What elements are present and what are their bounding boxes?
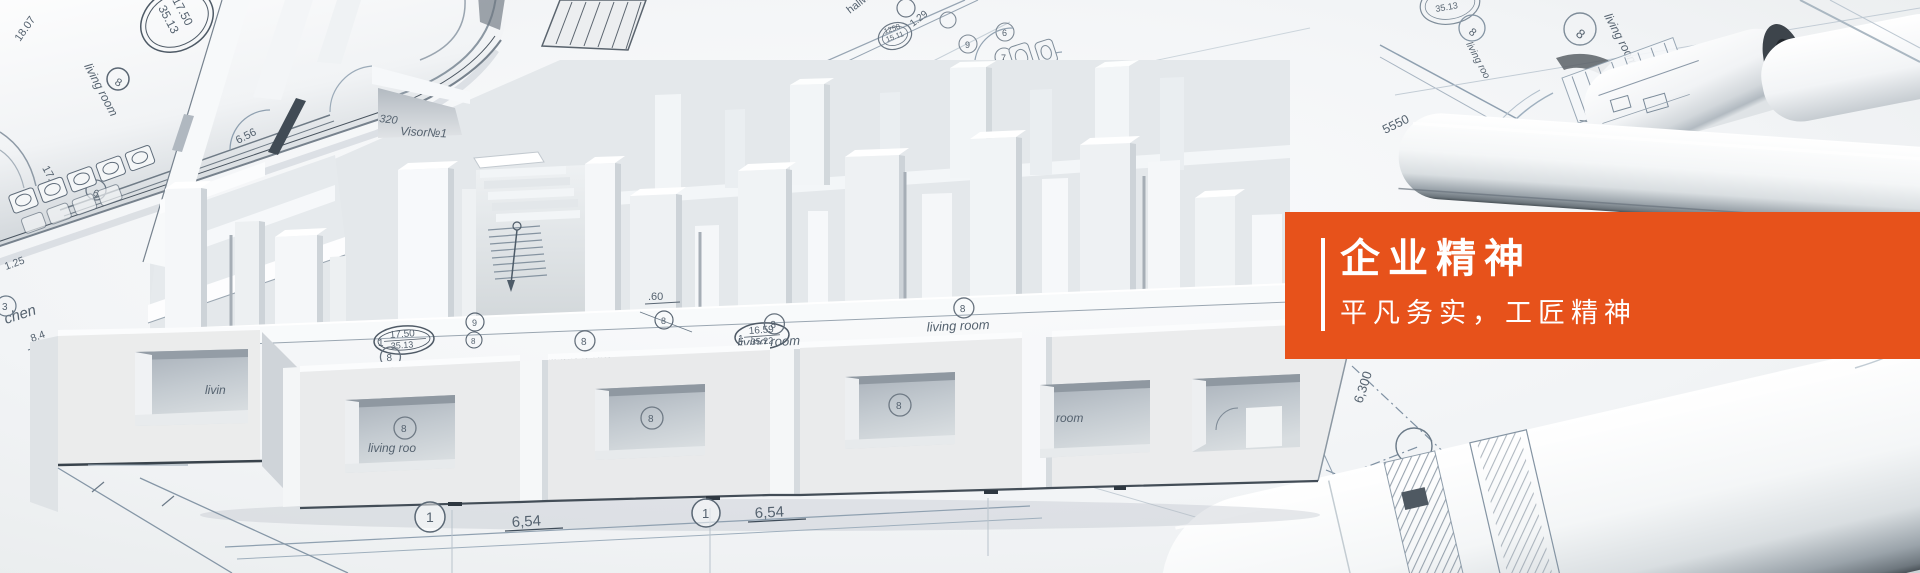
bp-label-visor: Visor№1: [400, 124, 447, 140]
bp-room8-3: 8: [770, 320, 776, 331]
bp-label-livin: livin: [205, 383, 226, 397]
bp-win8-2: 8: [648, 414, 654, 425]
bp-circle2-1: 1: [378, 338, 384, 349]
bp-grid-1a: 1: [426, 509, 434, 525]
bp-room-label-4: living room: [926, 317, 990, 335]
bp-circle2-3513: 35.13: [390, 339, 413, 351]
model-staircase: [474, 152, 585, 317]
banner-accent-bar: [1321, 238, 1325, 331]
hero-banner-section: 18.07 living room 8 17.50 35.13 17.50 6 …: [0, 0, 1920, 573]
bp-room8-2: 8: [581, 337, 587, 348]
bp-mark-8c: 8: [471, 337, 476, 346]
bp-grid-1b: 1: [702, 506, 709, 521]
bp-dim-654b: 6,54: [754, 503, 784, 522]
bp-win8-3: 8: [896, 401, 902, 412]
bp-label-320: 320: [379, 113, 399, 127]
bp-dim-654a: 6,54: [511, 512, 541, 531]
bp-mark-9: 9: [472, 318, 477, 328]
bp-mark-3: 3: [2, 302, 8, 313]
corporate-spirit-banner: 企业精神 平凡务实，工匠精神: [1285, 212, 1920, 359]
building-model: 6.56 1.25 chen 8.4 3 13: [0, 0, 1356, 531]
bp-room8-4: 8: [960, 304, 966, 315]
banner-subtitle: 平凡务实，工匠精神: [1340, 299, 1637, 327]
bp-win8-1: 8: [401, 424, 407, 435]
bp-win-label-room: room: [1056, 411, 1083, 425]
bp-mark-9b: 9: [965, 40, 970, 50]
bp-win-label-1: living roo: [368, 441, 416, 455]
banner-title: 企业精神: [1340, 239, 1532, 279]
bp-label-60: .60: [648, 291, 663, 303]
